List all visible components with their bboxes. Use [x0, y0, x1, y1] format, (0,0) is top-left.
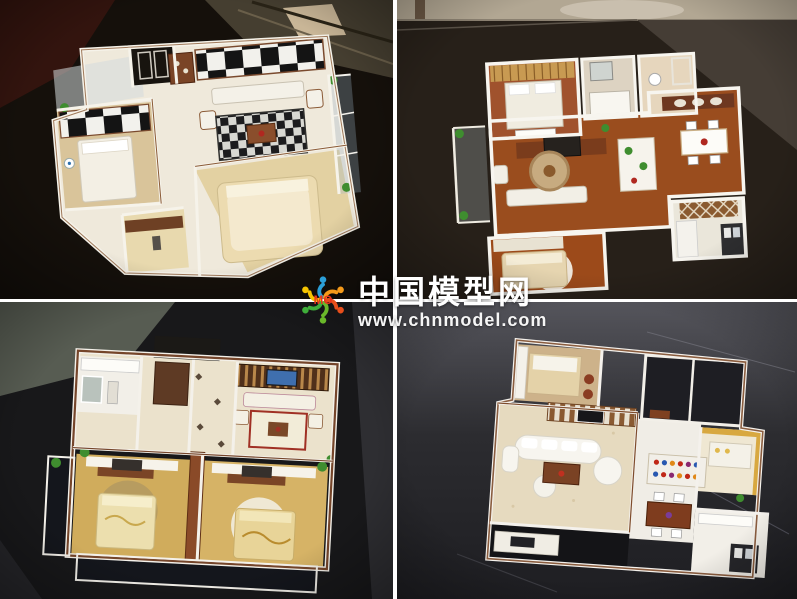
photo-collage: MO 中国模型网 www.chnmodel.com — [0, 0, 797, 599]
model-photo-bottom-right — [397, 302, 797, 599]
model-illustration-bottom-left — [0, 302, 393, 599]
model-illustration-bottom-right — [397, 302, 797, 599]
model-photo-top-right — [397, 0, 797, 299]
model-illustration-top-left — [0, 0, 393, 299]
model-illustration-top-right — [397, 0, 797, 299]
model-photo-top-left — [0, 0, 393, 299]
model-photo-bottom-left — [0, 302, 393, 599]
